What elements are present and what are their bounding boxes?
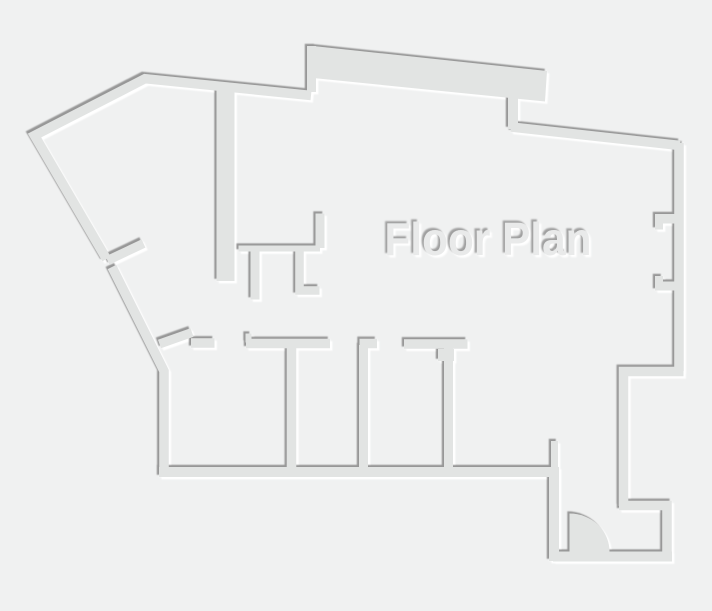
svg-text:Floor Plan: Floor Plan [385, 213, 592, 265]
